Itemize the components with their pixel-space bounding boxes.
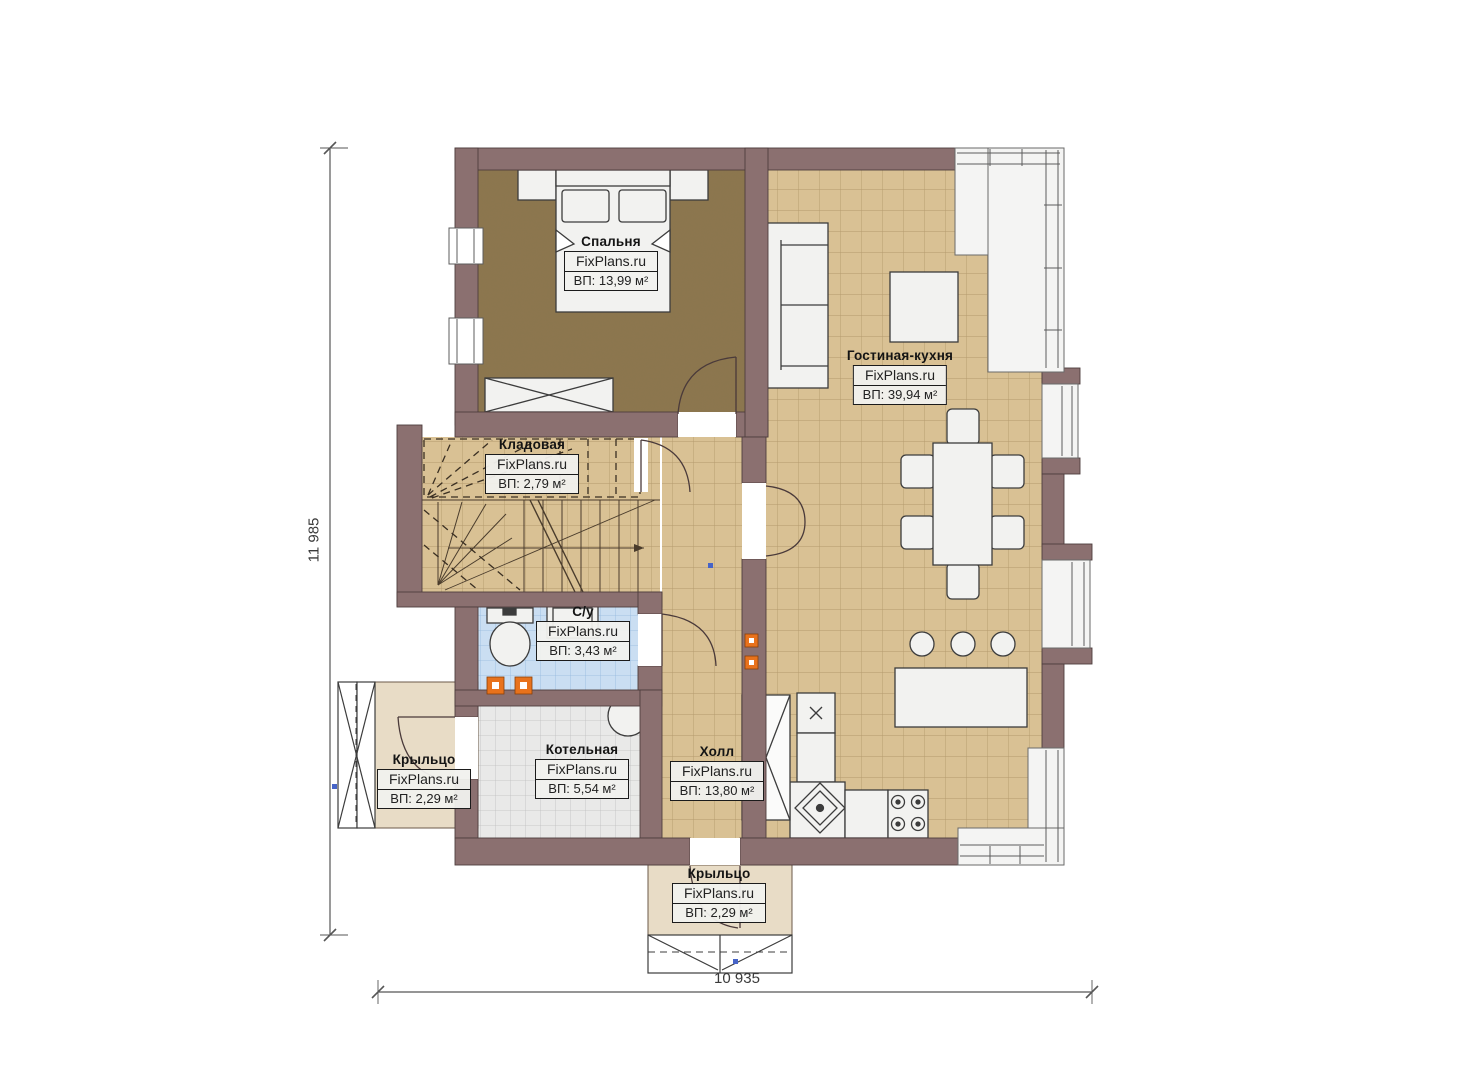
brand-watermark: FixPlans.ru: [486, 455, 578, 475]
room-info-box: FixPlans.ru ВП: 3,43 м²: [536, 621, 630, 661]
room-area: ВП: 5,54 м²: [536, 780, 628, 798]
room-area: ВП: 13,99 м²: [565, 272, 657, 290]
room-info-box: FixPlans.ru ВП: 13,99 м²: [564, 251, 658, 291]
cabinet: [797, 733, 835, 782]
room-name: Котельная: [535, 742, 629, 757]
chair: [990, 455, 1024, 488]
room-name: Спальня: [564, 234, 658, 249]
room-info-box: FixPlans.ru ВП: 2,79 м²: [485, 454, 579, 494]
cabinet: [845, 790, 888, 838]
handle-dot: [332, 784, 337, 789]
toilet: [487, 608, 533, 666]
room-label-bedroom: Спальня FixPlans.ru ВП: 13,99 м²: [564, 234, 658, 291]
chair: [901, 516, 935, 549]
room-area: ВП: 2,79 м²: [486, 475, 578, 493]
dining-table: [933, 443, 992, 565]
brand-watermark: FixPlans.ru: [537, 622, 629, 642]
brand-watermark: FixPlans.ru: [854, 366, 946, 386]
room-info-box: FixPlans.ru ВП: 2,29 м²: [377, 769, 471, 809]
room-area: ВП: 2,29 м²: [378, 790, 470, 808]
floor-plan-page: Спальня FixPlans.ru ВП: 13,99 м² Гостина…: [0, 0, 1473, 1080]
room-info-box: FixPlans.ru ВП: 13,80 м²: [670, 761, 764, 801]
handle-dot: [733, 959, 738, 964]
room-info-box: FixPlans.ru ВП: 5,54 м²: [535, 759, 629, 799]
room-label-storage: Кладовая FixPlans.ru ВП: 2,79 м²: [485, 437, 579, 494]
bar-stool: [991, 632, 1015, 656]
nightstand: [670, 170, 708, 200]
porch-left-steps: [338, 682, 375, 828]
chair: [947, 409, 979, 445]
room-name: Кладовая: [485, 437, 579, 452]
chair: [901, 455, 935, 488]
room-label-porch-left: Крыльцо FixPlans.ru ВП: 2,29 м²: [377, 752, 471, 809]
brand-watermark: FixPlans.ru: [536, 760, 628, 780]
pillow: [619, 190, 666, 222]
room-label-living-kitchen: Гостиная-кухня FixPlans.ru ВП: 39,94 м²: [847, 348, 953, 405]
room-name: С/у: [536, 604, 630, 619]
room-name: Крыльцо: [672, 866, 766, 881]
wardrobe: [485, 378, 613, 412]
dimension-text-horizontal: 10 935: [714, 970, 760, 987]
room-info-box: FixPlans.ru ВП: 2,29 м²: [672, 883, 766, 923]
room-area: ВП: 39,94 м²: [854, 386, 946, 404]
porch-bottom-steps: [648, 935, 792, 973]
brand-watermark: FixPlans.ru: [378, 770, 470, 790]
pillow: [562, 190, 609, 222]
nightstand: [518, 170, 556, 200]
brand-watermark: FixPlans.ru: [673, 884, 765, 904]
brand-watermark: FixPlans.ru: [565, 252, 657, 272]
brand-watermark: FixPlans.ru: [671, 762, 763, 782]
sofa: [765, 223, 828, 388]
room-label-boiler: Котельная FixPlans.ru ВП: 5,54 м²: [535, 742, 629, 799]
room-name: Крыльцо: [377, 752, 471, 767]
dimension-text-vertical: 11 985: [306, 518, 323, 563]
coffee-table: [890, 272, 958, 342]
handle-dot: [708, 563, 713, 568]
room-name: Гостиная-кухня: [847, 348, 953, 363]
room-name: Холл: [670, 744, 764, 759]
chair: [947, 563, 979, 599]
room-label-bathroom: С/у FixPlans.ru ВП: 3,43 м²: [536, 604, 630, 661]
room-area: ВП: 13,80 м²: [671, 782, 763, 800]
bar-stool: [910, 632, 934, 656]
room-label-porch-bottom: Крыльцо FixPlans.ru ВП: 2,29 м²: [672, 866, 766, 923]
chair: [990, 516, 1024, 549]
room-info-box: FixPlans.ru ВП: 39,94 м²: [853, 365, 947, 405]
stove: [888, 790, 928, 838]
room-label-hall: Холл FixPlans.ru ВП: 13,80 м²: [670, 744, 764, 801]
bar-stool: [951, 632, 975, 656]
room-area: ВП: 3,43 м²: [537, 642, 629, 660]
kitchen-island: [895, 668, 1027, 727]
room-area: ВП: 2,29 м²: [673, 904, 765, 922]
